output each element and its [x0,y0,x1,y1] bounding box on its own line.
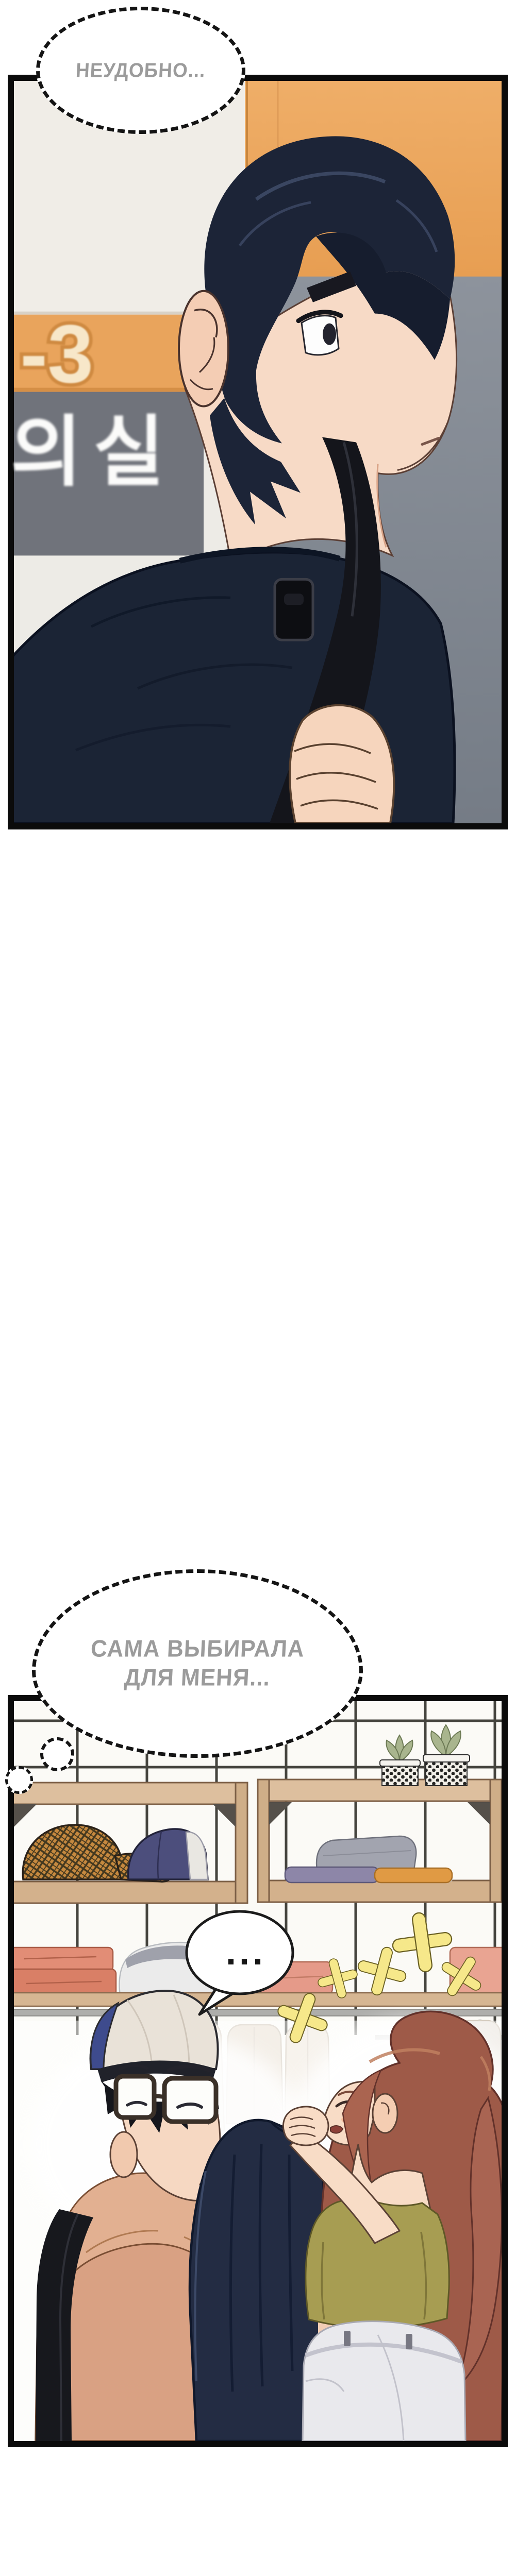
glasses-icon [116,2076,216,2122]
hand-gripping-strap [290,705,394,823]
speech-bubble-2: САМА ВЫБИРАЛА ДЛЯ МЕНЯ... [32,1569,363,1758]
comic-page: -3 -3 의실 НЕУДОБНО... [0,0,516,2576]
thought-trail-circle [40,1737,74,1771]
small-speech-bubble-text: ... [193,1922,298,1999]
speech-bubble-1-text: НЕУДОБНО... [75,59,206,81]
panel-2: ... [8,1695,508,2447]
strap-buckle [275,579,313,640]
speech-bubble-2-line1: САМА ВЫБИРАЛА [90,1634,305,1665]
white-jeans [303,2321,465,2441]
floor-sign-number: -3 [20,315,93,393]
thought-trail-circle [5,1766,33,1794]
panel-2-artwork [14,1701,502,2441]
panel-1: -3 -3 의실 [8,75,508,829]
ear [110,2132,137,2177]
speech-bubble-2-line2: ДЛЯ МЕНЯ... [124,1663,271,1693]
speech-bubble-1: НЕУДОБНО... [36,7,245,134]
floor-sign: -3 -3 [15,315,139,394]
ear [373,2094,397,2133]
korean-sign-label: 의실 [11,404,207,507]
